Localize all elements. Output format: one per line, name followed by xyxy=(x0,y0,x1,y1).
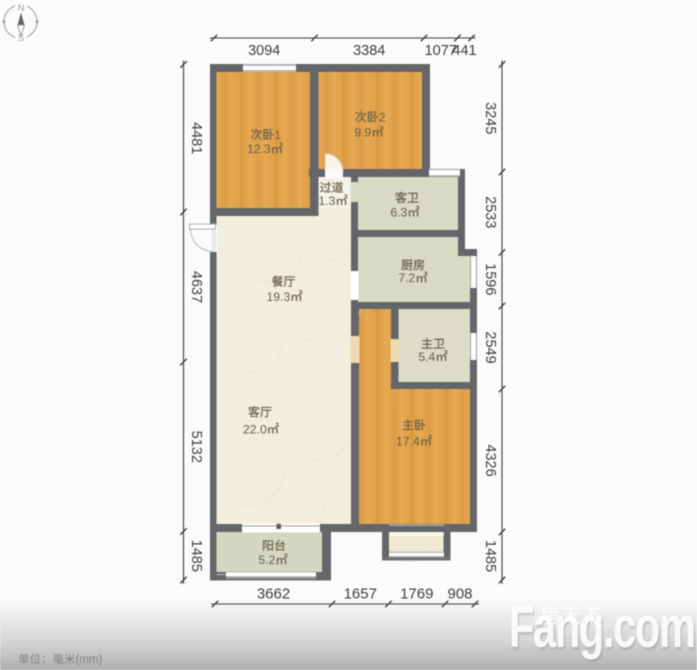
svg-text:1.3: 1.3 xyxy=(318,194,335,208)
svg-text:3245: 3245 xyxy=(482,102,498,134)
svg-text:2549: 2549 xyxy=(482,331,498,363)
svg-text:3384: 3384 xyxy=(353,43,385,59)
svg-text:19.3: 19.3 xyxy=(267,290,291,304)
svg-text:1: 1 xyxy=(274,128,281,142)
svg-text:7.2: 7.2 xyxy=(398,271,415,285)
svg-text:4481: 4481 xyxy=(188,122,204,154)
svg-text:22.0: 22.0 xyxy=(243,422,267,436)
svg-text:3662: 3662 xyxy=(257,586,290,603)
svg-text:5132: 5132 xyxy=(188,431,204,463)
svg-text:1485: 1485 xyxy=(188,540,204,572)
svg-text:4637: 4637 xyxy=(188,271,204,303)
svg-text:1596: 1596 xyxy=(482,263,498,295)
svg-text:3094: 3094 xyxy=(248,43,280,59)
svg-text:441: 441 xyxy=(452,43,476,59)
svg-text:1769: 1769 xyxy=(400,586,433,603)
svg-text:908: 908 xyxy=(447,586,472,603)
svg-text:Fang.com: Fang.com xyxy=(509,594,695,659)
svg-text:4326: 4326 xyxy=(482,444,498,476)
svg-text:5.4: 5.4 xyxy=(418,350,435,364)
svg-text:N: N xyxy=(18,3,25,14)
svg-text:12.3: 12.3 xyxy=(247,142,271,156)
svg-text:6.3: 6.3 xyxy=(390,205,407,219)
svg-text:17.4: 17.4 xyxy=(396,434,420,448)
svg-text:2533: 2533 xyxy=(482,196,498,228)
svg-text:1657: 1657 xyxy=(344,586,377,603)
svg-text:1485: 1485 xyxy=(482,540,498,572)
svg-text:5.2: 5.2 xyxy=(258,553,275,567)
svg-text:(mm): (mm) xyxy=(76,654,103,666)
svg-text:2: 2 xyxy=(379,110,386,124)
svg-text:9.9: 9.9 xyxy=(354,125,371,139)
